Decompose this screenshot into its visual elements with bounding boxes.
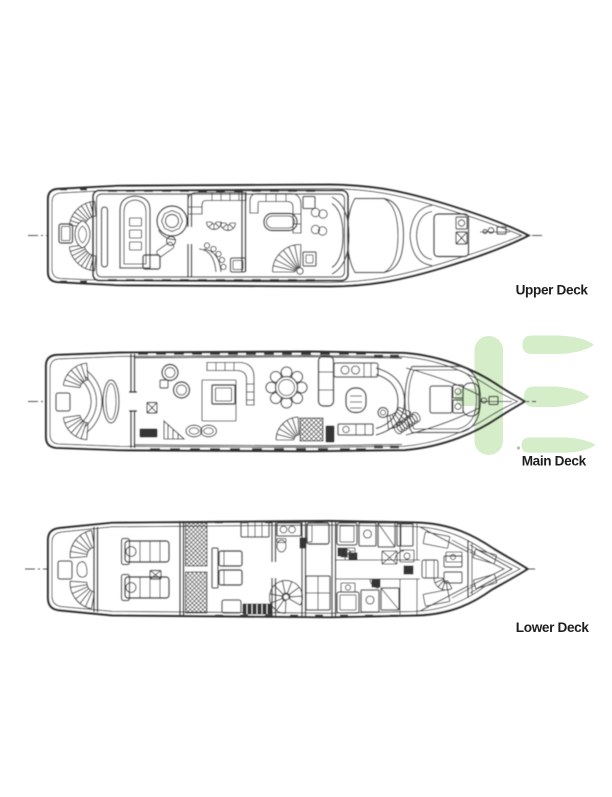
svg-text:Lower Deck: Lower Deck — [516, 620, 590, 635]
svg-text:Main Deck: Main Deck — [522, 453, 587, 468]
svg-text:Upper Deck: Upper Deck — [516, 283, 589, 298]
